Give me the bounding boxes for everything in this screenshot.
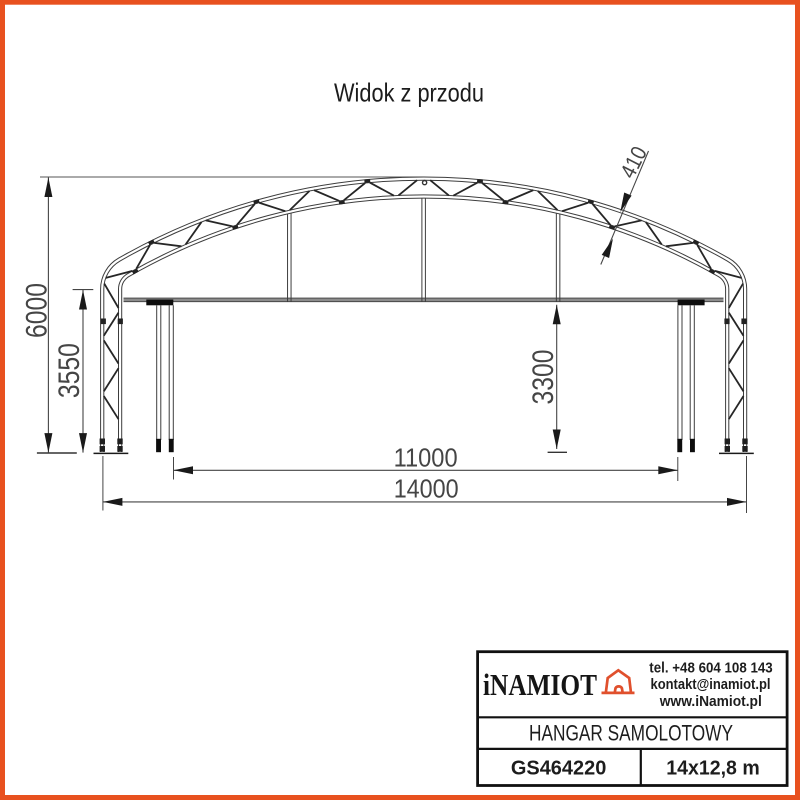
svg-text:kontakt@inamiot.pl: kontakt@inamiot.pl [651,677,771,693]
svg-text:3550: 3550 [53,343,86,398]
svg-text:GS464220: GS464220 [511,757,607,780]
svg-text:www.iNamiot.pl: www.iNamiot.pl [659,694,762,710]
svg-text:11000: 11000 [394,442,458,472]
svg-text:14x12,8 m: 14x12,8 m [666,757,760,780]
svg-text:Widok z przodu: Widok z przodu [334,78,484,108]
svg-text:3300: 3300 [527,350,560,405]
svg-text:iNAMIOT: iNAMIOT [483,668,597,702]
svg-text:tel. +48 604 108 143: tel. +48 604 108 143 [649,660,772,676]
svg-text:6000: 6000 [21,283,54,338]
svg-text:14000: 14000 [394,474,459,504]
svg-text:HANGAR SAMOLOTOWY: HANGAR SAMOLOTOWY [529,721,733,746]
